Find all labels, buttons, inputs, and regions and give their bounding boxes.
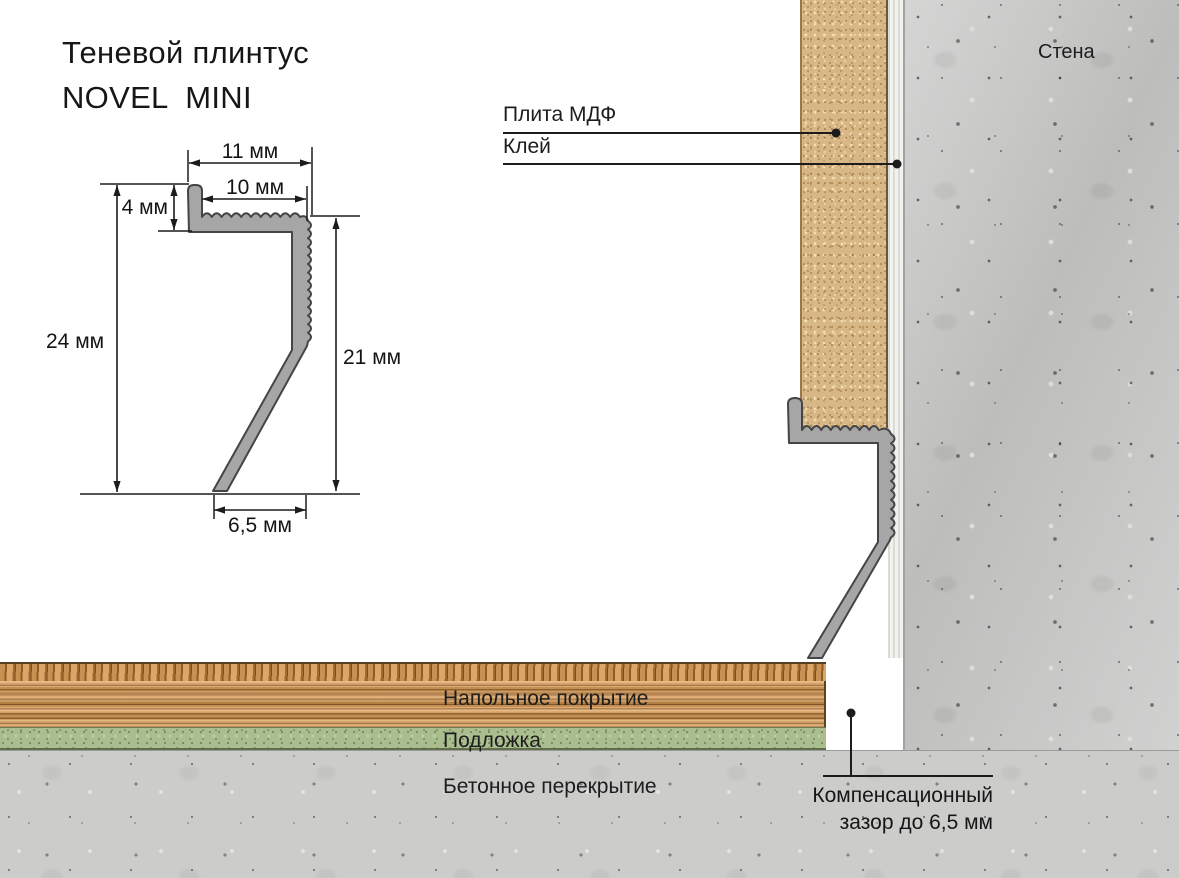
drawing-profile-shape	[188, 185, 311, 491]
dim-right-height: 21 мм	[343, 346, 401, 370]
gap-label-line2: зазор до 6,5 мм	[783, 809, 993, 836]
dim-bottom-width: 6,5 мм	[214, 514, 306, 538]
slab-label: Бетонное перекрытие	[443, 775, 657, 799]
title-line1: Теневой плинтус	[62, 30, 309, 75]
dim-inner-width: 10 мм	[210, 176, 300, 200]
dim-top-width: 11 мм	[205, 140, 295, 164]
floor-covering-label: Напольное покрытие	[443, 687, 648, 711]
dim-total-height: 24 мм	[46, 330, 104, 354]
diagram-title: Теневой плинтус NOVEL MINI	[62, 30, 309, 120]
wall-label: Стена	[1038, 41, 1095, 64]
gap-label-line1: Компенсационный	[783, 782, 993, 809]
compensation-gap-label: Компенсационный зазор до 6,5 мм	[783, 782, 993, 836]
leader-lines	[503, 133, 993, 776]
diagram-canvas: Теневой плинтус NOVEL MINI Стена Плита М…	[0, 0, 1179, 878]
installed-profile-shape	[788, 398, 895, 658]
title-line2: NOVEL MINI	[62, 75, 309, 120]
glue-label: Клей	[503, 135, 551, 159]
dim-lip-height: 4 мм	[100, 196, 168, 220]
mdf-label: Плита МДФ	[503, 103, 616, 127]
diagram-vector-overlay	[0, 0, 1179, 878]
leader-dots	[832, 129, 902, 718]
underlay-label: Подложка	[443, 729, 541, 753]
